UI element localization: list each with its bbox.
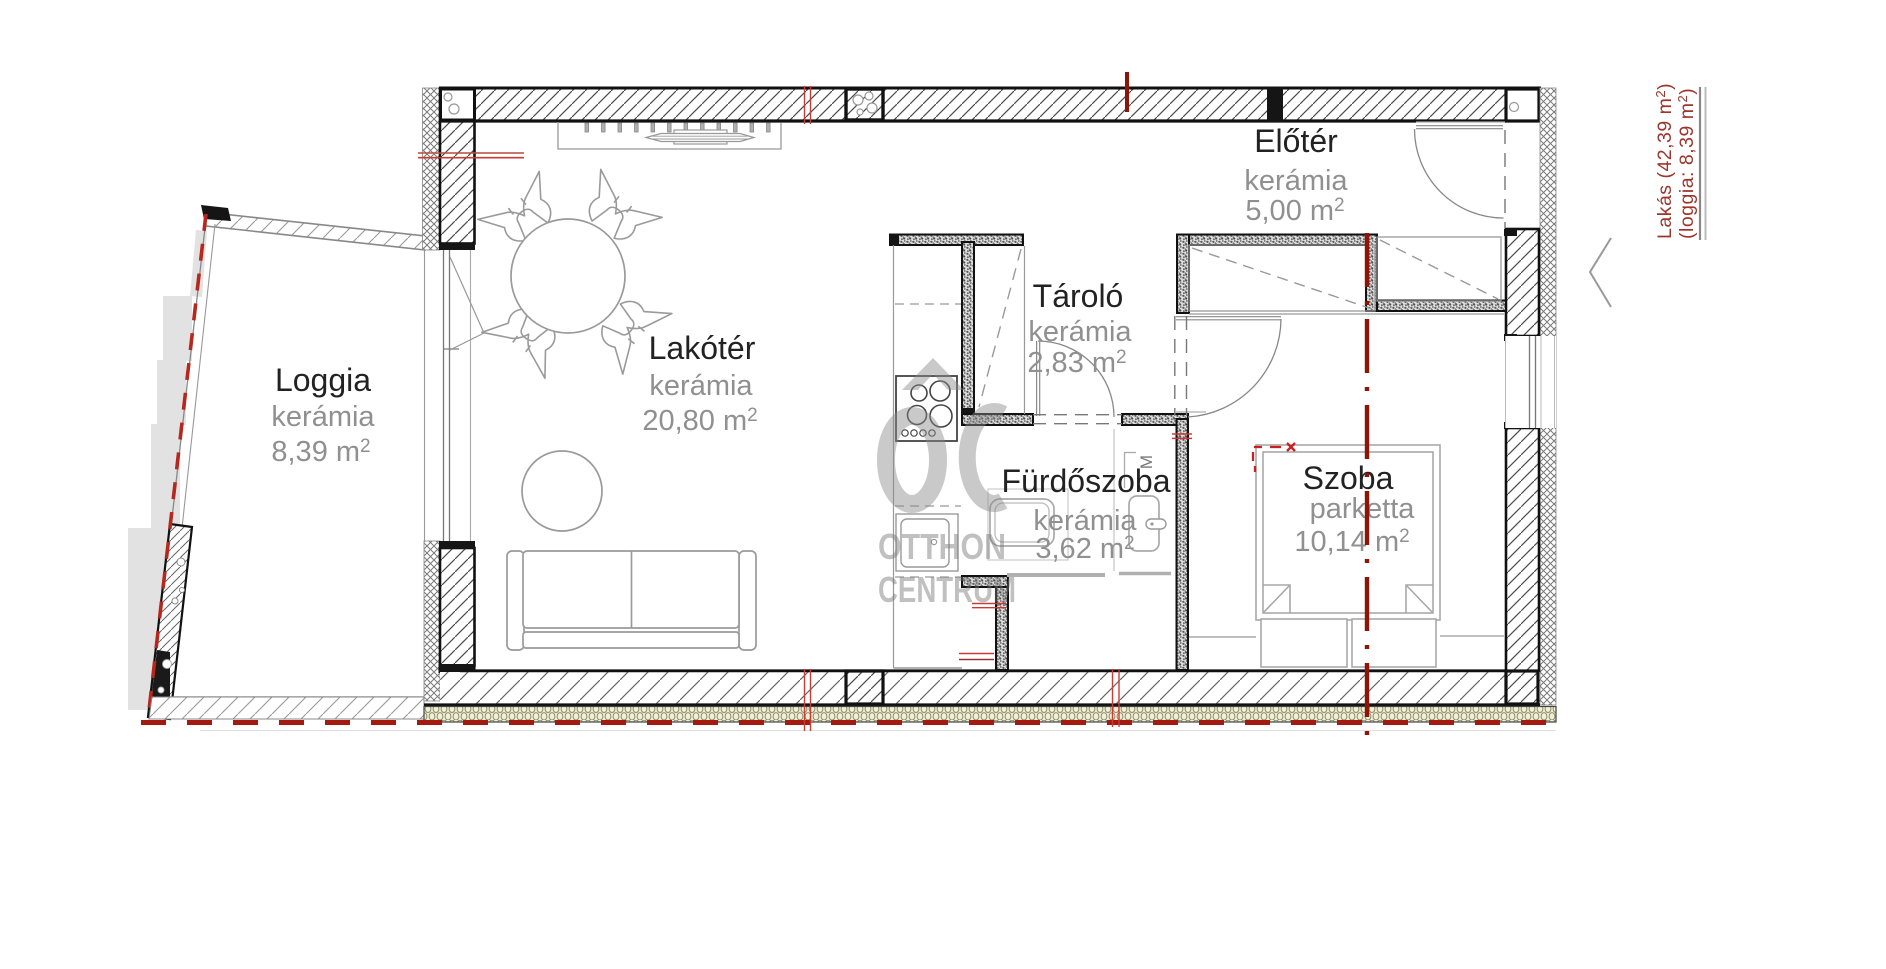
svg-text:Loggia: Loggia [275, 362, 371, 398]
svg-text:kerámia: kerámia [271, 401, 375, 433]
svg-text:Fürdőszoba: Fürdőszoba [1002, 463, 1171, 499]
svg-text:Tároló: Tároló [1033, 278, 1124, 314]
svg-text:8,39 m2: 8,39 m2 [271, 436, 370, 468]
svg-text:(loggia: 8,39 m2): (loggia: 8,39 m2) [1675, 88, 1698, 239]
svg-text:Lakótér: Lakótér [649, 330, 756, 366]
svg-text:Lakás (42,39 m2): Lakás (42,39 m2) [1653, 83, 1676, 239]
svg-text:kerámia: kerámia [1244, 165, 1348, 197]
svg-text:OTTHON: OTTHON [878, 526, 1006, 567]
svg-text:5,00 m2: 5,00 m2 [1245, 195, 1344, 227]
svg-text:3,62 m2: 3,62 m2 [1035, 533, 1134, 565]
svg-text:kerámia: kerámia [649, 370, 753, 402]
svg-text:20,80 m2: 20,80 m2 [642, 405, 757, 437]
svg-text:CENTRUM: CENTRUM [878, 569, 1016, 610]
svg-text:parketta: parketta [1310, 493, 1416, 525]
svg-text:kerámia: kerámia [1028, 316, 1132, 348]
svg-text:Előtér: Előtér [1254, 123, 1338, 159]
svg-text:10,14 m2: 10,14 m2 [1294, 526, 1409, 558]
svg-text:Szoba: Szoba [1303, 460, 1394, 496]
svg-text:2,83 m2: 2,83 m2 [1027, 347, 1126, 379]
